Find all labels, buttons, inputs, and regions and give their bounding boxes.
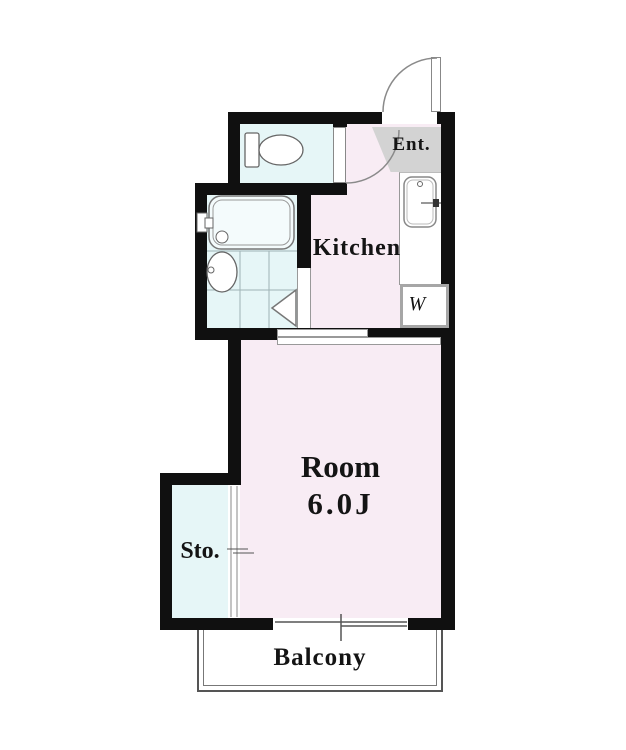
floor-plan: Ent. Kitchen Room 6.0J Sto. W Balcony — [0, 0, 626, 750]
room-name-text: Room — [240, 448, 441, 485]
balcony-window-opening — [273, 618, 408, 630]
entrance-label: Ent. — [372, 134, 441, 156]
wall-bath-left — [195, 183, 207, 340]
toilet-room-floor — [240, 124, 333, 183]
wall-storage-top — [160, 473, 241, 485]
wall-right — [441, 112, 455, 630]
wall-above-toilet-door — [333, 112, 347, 127]
bathroom-floor — [207, 195, 297, 328]
entrance-door-leaf — [431, 57, 441, 112]
bathroom-doorway — [297, 268, 311, 328]
room-label: Room 6.0J — [240, 448, 441, 522]
washer-label: W — [400, 293, 434, 316]
sliding-door-panel-lower — [277, 337, 441, 345]
wall-toilet-bath-divider — [195, 183, 347, 195]
entrance-door-arc — [383, 58, 437, 112]
storage-label: Sto. — [170, 538, 230, 565]
storage-door-lines — [231, 486, 237, 617]
kitchen-counter — [399, 172, 442, 285]
wall-top-left — [228, 112, 382, 124]
sliding-door-panel-upper — [277, 329, 368, 337]
balcony-label: Balcony — [197, 644, 443, 672]
kitchen-label: Kitchen — [297, 235, 417, 262]
room-size-text: 6.0J — [240, 485, 441, 522]
toilet-door-leaf — [333, 127, 346, 183]
